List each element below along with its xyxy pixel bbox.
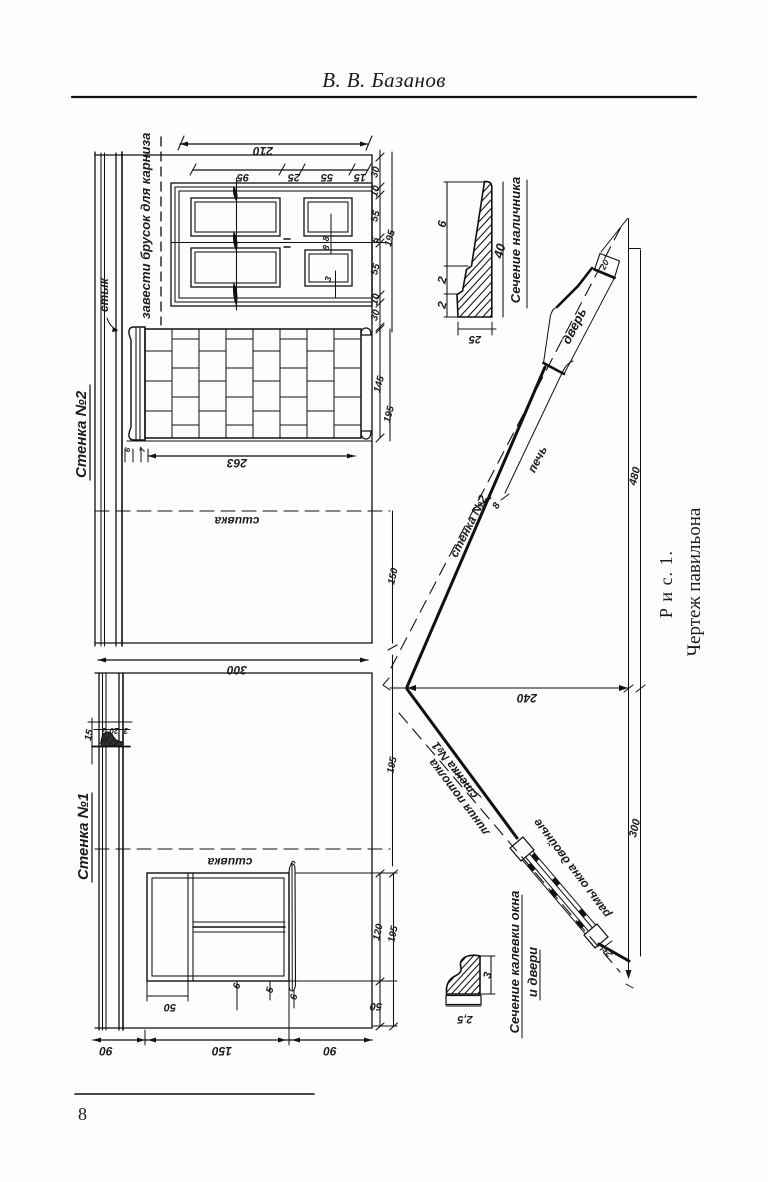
svg-text:завести брусок для карниза: завести брусок для карниза	[138, 133, 153, 319]
svg-text:дверь: дверь	[559, 305, 590, 346]
svg-text:Сечение калевки окна: Сечение калевки окна	[507, 891, 522, 1034]
svg-text:15: 15	[353, 171, 366, 183]
svg-text:120: 120	[371, 923, 385, 942]
svg-text:263: 263	[227, 456, 248, 470]
svg-text:55: 55	[369, 262, 383, 276]
svg-text:30: 30	[369, 308, 383, 322]
svg-text:6: 6	[123, 446, 133, 453]
svg-text:55: 55	[369, 209, 383, 223]
svg-text:40: 40	[490, 241, 508, 260]
svg-text:20: 20	[109, 726, 119, 735]
svg-text:6: 6	[288, 993, 300, 1002]
svg-text:Р и с. 1.: Р и с. 1.	[656, 550, 676, 618]
svg-text:5: 5	[264, 986, 276, 995]
svg-text:195: 195	[382, 404, 397, 423]
svg-text:195: 195	[386, 925, 400, 944]
svg-text:195: 195	[385, 756, 399, 775]
svg-text:и двери: и двери	[525, 947, 540, 997]
svg-text:90: 90	[99, 1044, 113, 1058]
svg-text:7: 7	[138, 446, 148, 453]
svg-text:Чертеж павильона: Чертеж павильона	[684, 507, 705, 656]
svg-text:300: 300	[227, 663, 247, 677]
svg-text:55: 55	[320, 171, 333, 183]
svg-text:50: 50	[369, 1000, 382, 1012]
svg-text:В. В. Базанов: В. В. Базанов	[322, 68, 445, 92]
svg-text:Сечение наличника: Сечение наличника	[508, 177, 523, 303]
svg-text:240: 240	[517, 691, 538, 705]
svg-text:8: 8	[491, 501, 504, 511]
svg-text:150: 150	[386, 567, 400, 586]
svg-text:сшивка: сшивка	[214, 514, 259, 528]
svg-text:25: 25	[287, 171, 301, 183]
svg-text:3: 3	[123, 726, 128, 735]
svg-text:Стенка №2: Стенка №2	[73, 390, 90, 478]
svg-text:95: 95	[236, 171, 249, 183]
svg-text:145: 145	[372, 374, 387, 393]
svg-text:сшивка: сшивка	[207, 855, 252, 869]
svg-text:15: 15	[83, 728, 96, 742]
svg-text:6: 6	[231, 982, 243, 991]
svg-text:стык: стык	[97, 277, 111, 312]
svg-text:3: 3	[101, 726, 106, 735]
svg-text:30: 30	[369, 165, 383, 179]
svg-text:150: 150	[212, 1044, 232, 1058]
svg-text:печь: печь	[525, 444, 550, 475]
svg-text:195: 195	[383, 228, 398, 247]
svg-text:50: 50	[163, 1001, 176, 1013]
svg-text:8: 8	[78, 1104, 87, 1124]
svg-text:3: 3	[481, 971, 494, 980]
svg-text:210: 210	[253, 144, 274, 158]
svg-text:2,5: 2,5	[456, 1013, 473, 1025]
svg-text:Стенка №1: Стенка №1	[75, 793, 92, 880]
svg-text:90: 90	[323, 1044, 337, 1058]
svg-text:25: 25	[468, 333, 482, 345]
